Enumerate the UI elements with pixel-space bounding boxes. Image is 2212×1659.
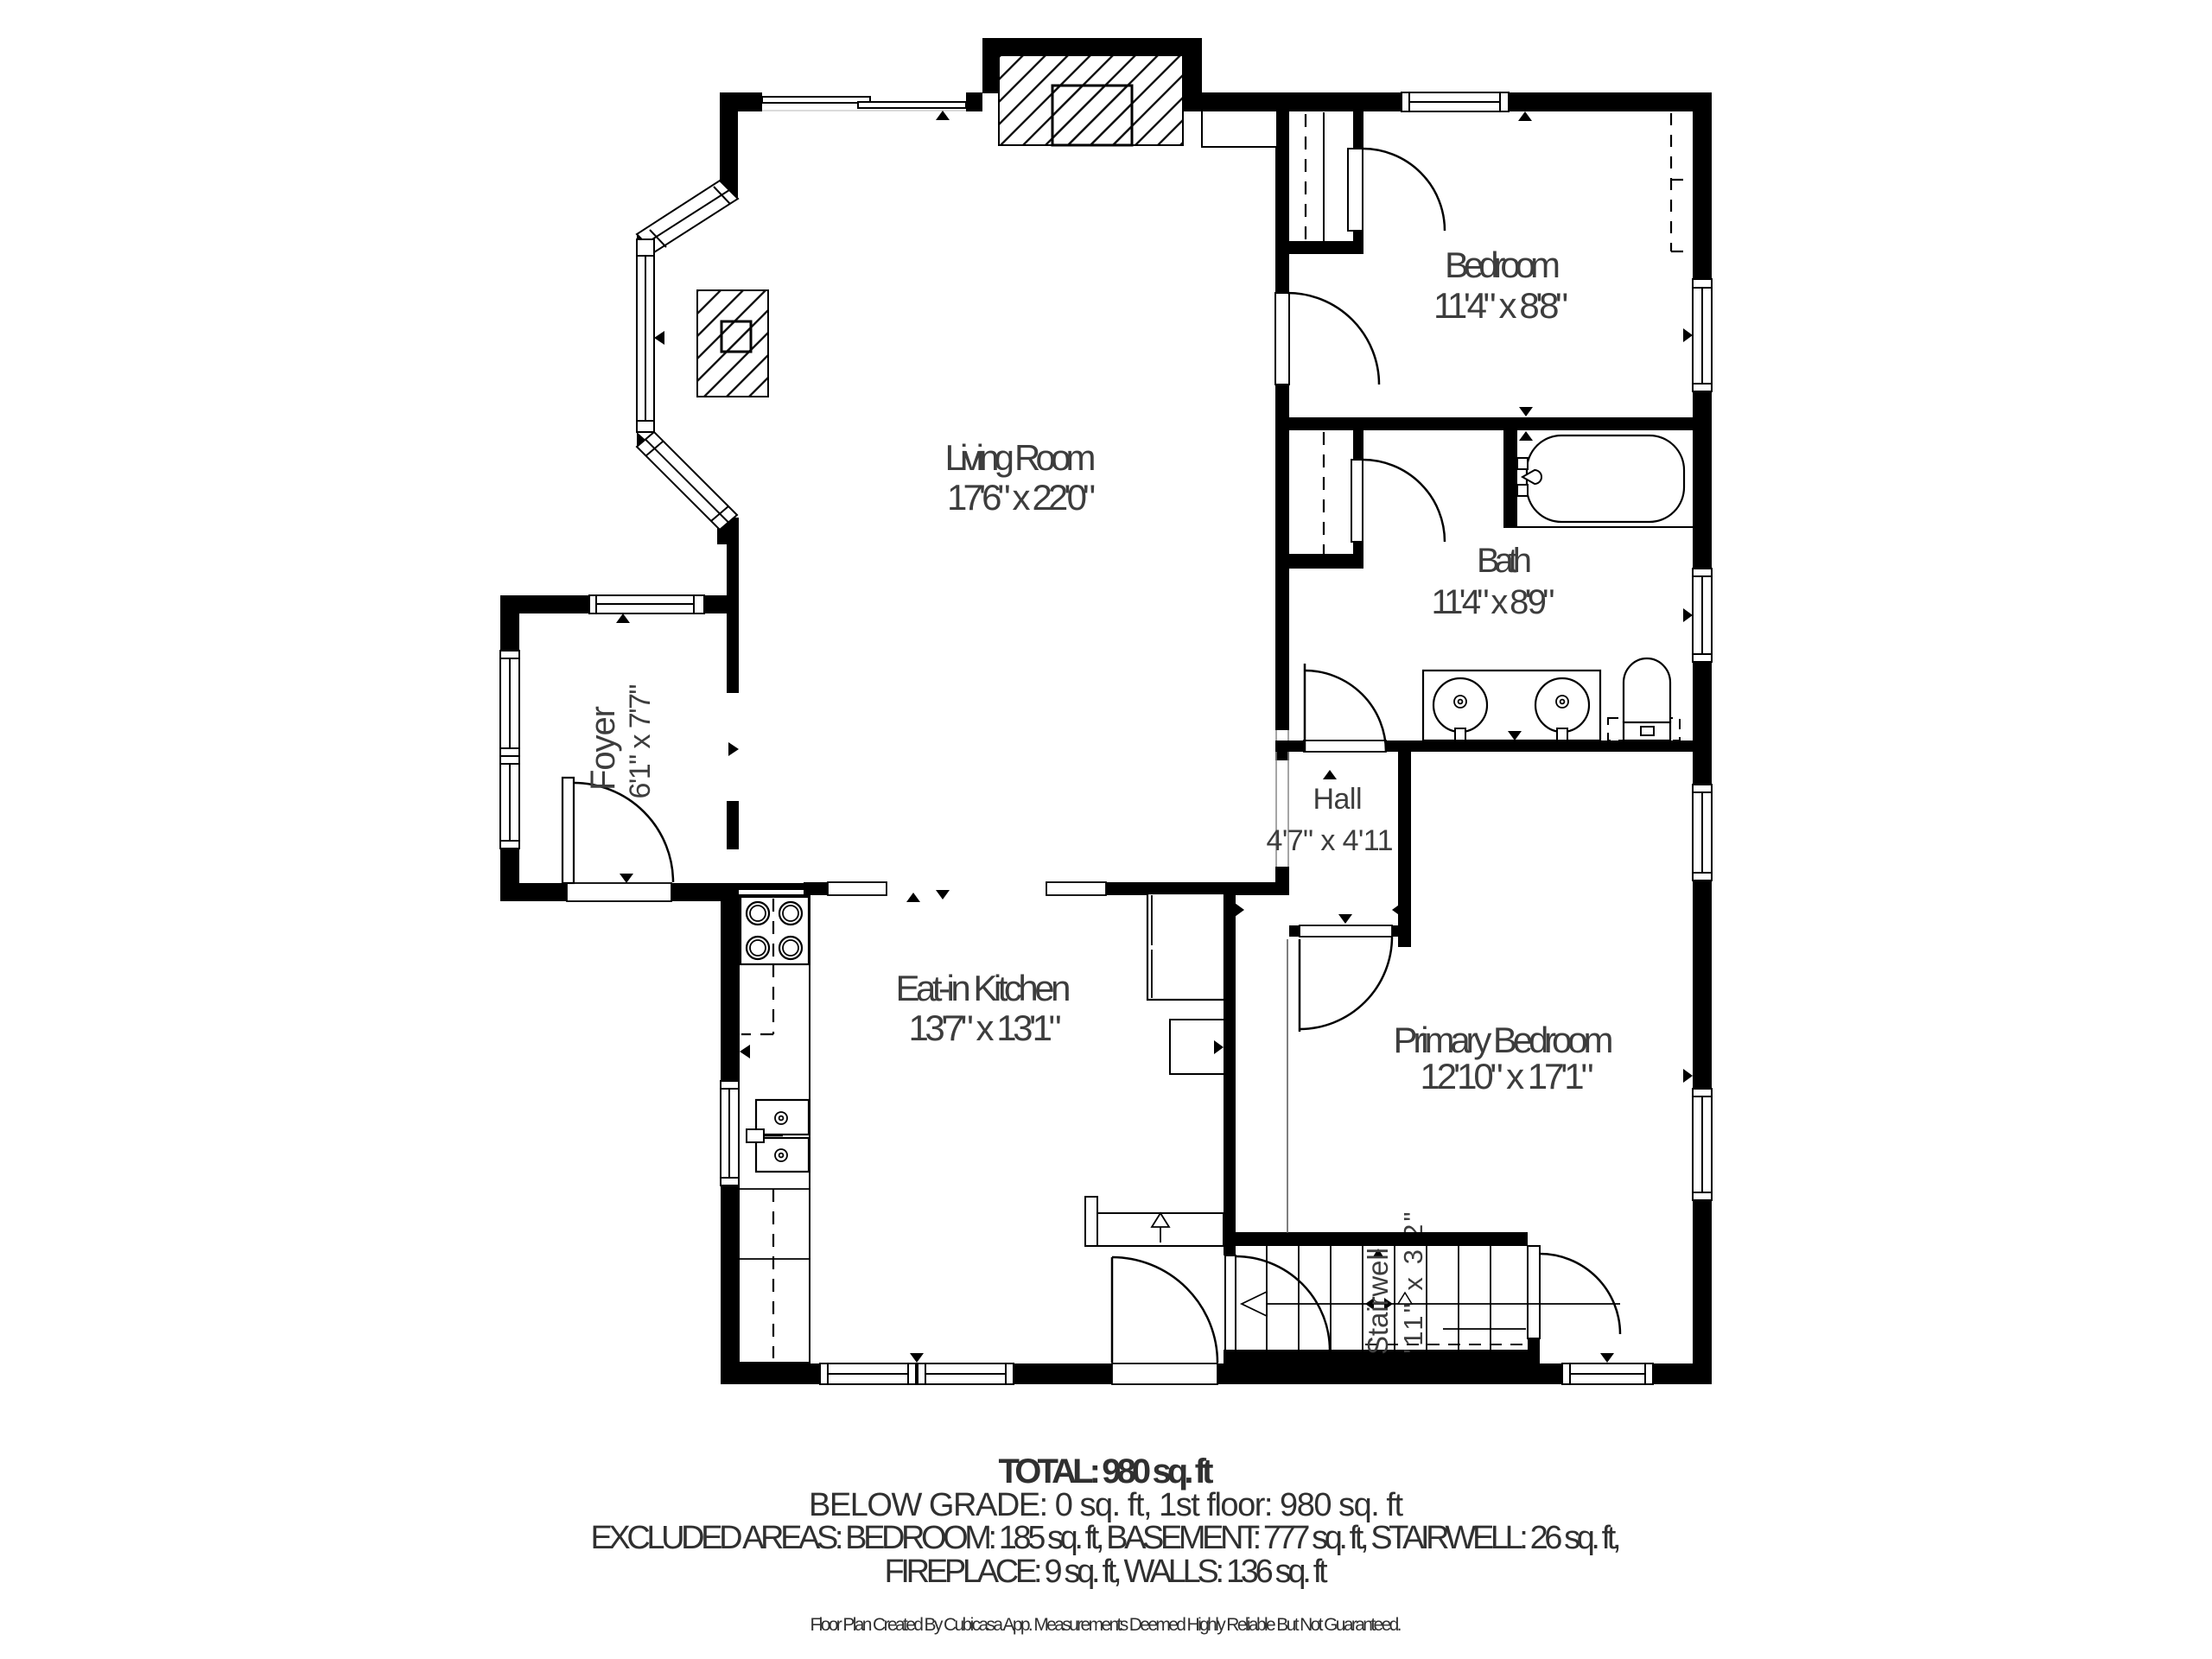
svg-text:6'1" x 7'7": 6'1" x 7'7" [624, 684, 657, 799]
svg-text:12'10" x 17'1": 12'10" x 17'1" [1421, 1056, 1594, 1096]
svg-text:Living Room: Living Room [945, 437, 1096, 478]
svg-text:13'7" x 13'1": 13'7" x 13'1" [909, 1007, 1062, 1048]
svg-text:11'4" x 8'9": 11'4" x 8'9" [1432, 583, 1555, 621]
svg-text:Bath: Bath [1477, 542, 1532, 580]
svg-text:TOTAL: 980 sq. ft: TOTAL: 980 sq. ft [999, 1452, 1214, 1491]
svg-text:Primary Bedroom: Primary Bedroom [1394, 1020, 1614, 1060]
svg-text:11'4" x 8'8": 11'4" x 8'8" [1433, 285, 1568, 326]
svg-text:Foyer: Foyer [584, 706, 622, 791]
svg-text:4'7" x 4'11: 4'7" x 4'11 [1267, 824, 1394, 857]
svg-text:Eat-in Kitchen: Eat-in Kitchen [896, 968, 1071, 1008]
svg-text:FIREPLACE: 9 sq. ft, WALLS: 13: FIREPLACE: 9 sq. ft, WALLS: 136 sq. ft [885, 1554, 1328, 1590]
svg-text:Bedroom: Bedroom [1445, 245, 1560, 285]
svg-text:BELOW GRADE: 0 sq. ft, 1st flo: BELOW GRADE: 0 sq. ft, 1st floor: 980 sq… [809, 1487, 1403, 1523]
svg-text:17'6" x 22'0": 17'6" x 22'0" [947, 477, 1096, 518]
svg-text:Floor Plan Created By Cubicasa: Floor Plan Created By Cubicasa App. Meas… [810, 1615, 1402, 1635]
svg-text:Hall: Hall [1313, 783, 1363, 816]
svg-text:EXCLUDED AREAS: BEDROOM: 185 s: EXCLUDED AREAS: BEDROOM: 185 sq. ft, BAS… [591, 1520, 1622, 1556]
svg-text:Stairwell: Stairwell [1362, 1248, 1394, 1355]
